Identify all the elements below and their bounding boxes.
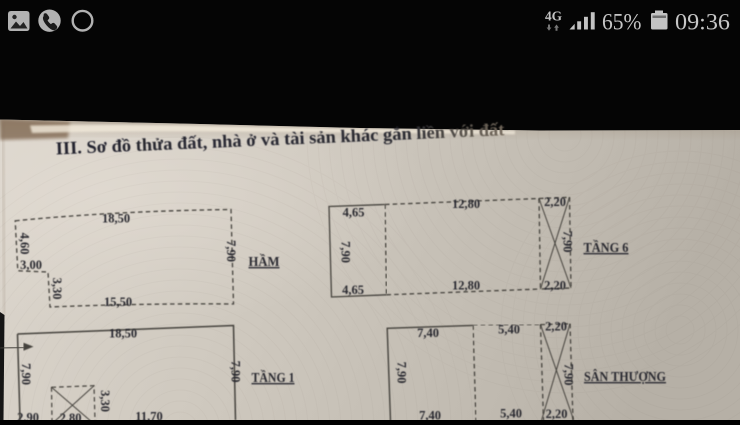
- svg-text:4,65: 4,65: [342, 283, 364, 297]
- svg-text:TẦNG 6: TẦNG 6: [584, 240, 629, 255]
- svg-text:65%: 65%: [602, 10, 642, 35]
- svg-text:18,50: 18,50: [109, 327, 137, 341]
- svg-text:2,20: 2,20: [546, 407, 568, 420]
- svg-text:SÂN THƯỢNG: SÂN THƯỢNG: [584, 369, 666, 384]
- svg-text:7,90: 7,90: [561, 231, 575, 253]
- svg-text:3,30: 3,30: [98, 390, 112, 412]
- svg-text:2,20: 2,20: [544, 279, 566, 293]
- svg-text:TẦNG 1: TẦNG 1: [252, 370, 295, 385]
- svg-text:2,90: 2,90: [17, 411, 39, 421]
- svg-text:5,40: 5,40: [500, 407, 522, 421]
- svg-text:12,80: 12,80: [452, 279, 480, 293]
- svg-text:7,90: 7,90: [395, 362, 409, 384]
- svg-text:3,00: 3,00: [20, 258, 42, 272]
- svg-text:09:36: 09:36: [675, 10, 730, 35]
- svg-text:7,90: 7,90: [562, 364, 576, 386]
- svg-text:7,40: 7,40: [419, 409, 441, 421]
- svg-text:15,50: 15,50: [104, 295, 132, 309]
- svg-text:2,80: 2,80: [60, 411, 82, 420]
- svg-text:12,80: 12,80: [452, 197, 480, 211]
- svg-text:7,90: 7,90: [19, 363, 33, 385]
- svg-text:5,40: 5,40: [498, 323, 520, 337]
- svg-text:4,60: 4,60: [18, 233, 32, 255]
- svg-text:7,90: 7,90: [339, 241, 353, 263]
- svg-text:11,70: 11,70: [135, 410, 162, 421]
- svg-text:18,50: 18,50: [102, 212, 130, 226]
- svg-text:2,20: 2,20: [544, 195, 566, 209]
- svg-text:HẦM: HẦM: [249, 254, 280, 269]
- svg-text:7,90: 7,90: [229, 361, 243, 383]
- svg-text:4G: 4G: [545, 9, 562, 24]
- svg-text:4,65: 4,65: [343, 206, 365, 220]
- svg-text:2,20: 2,20: [545, 320, 567, 334]
- svg-text:7,40: 7,40: [417, 326, 439, 340]
- svg-text:7,90: 7,90: [224, 240, 238, 262]
- svg-text:3,30: 3,30: [50, 278, 64, 300]
